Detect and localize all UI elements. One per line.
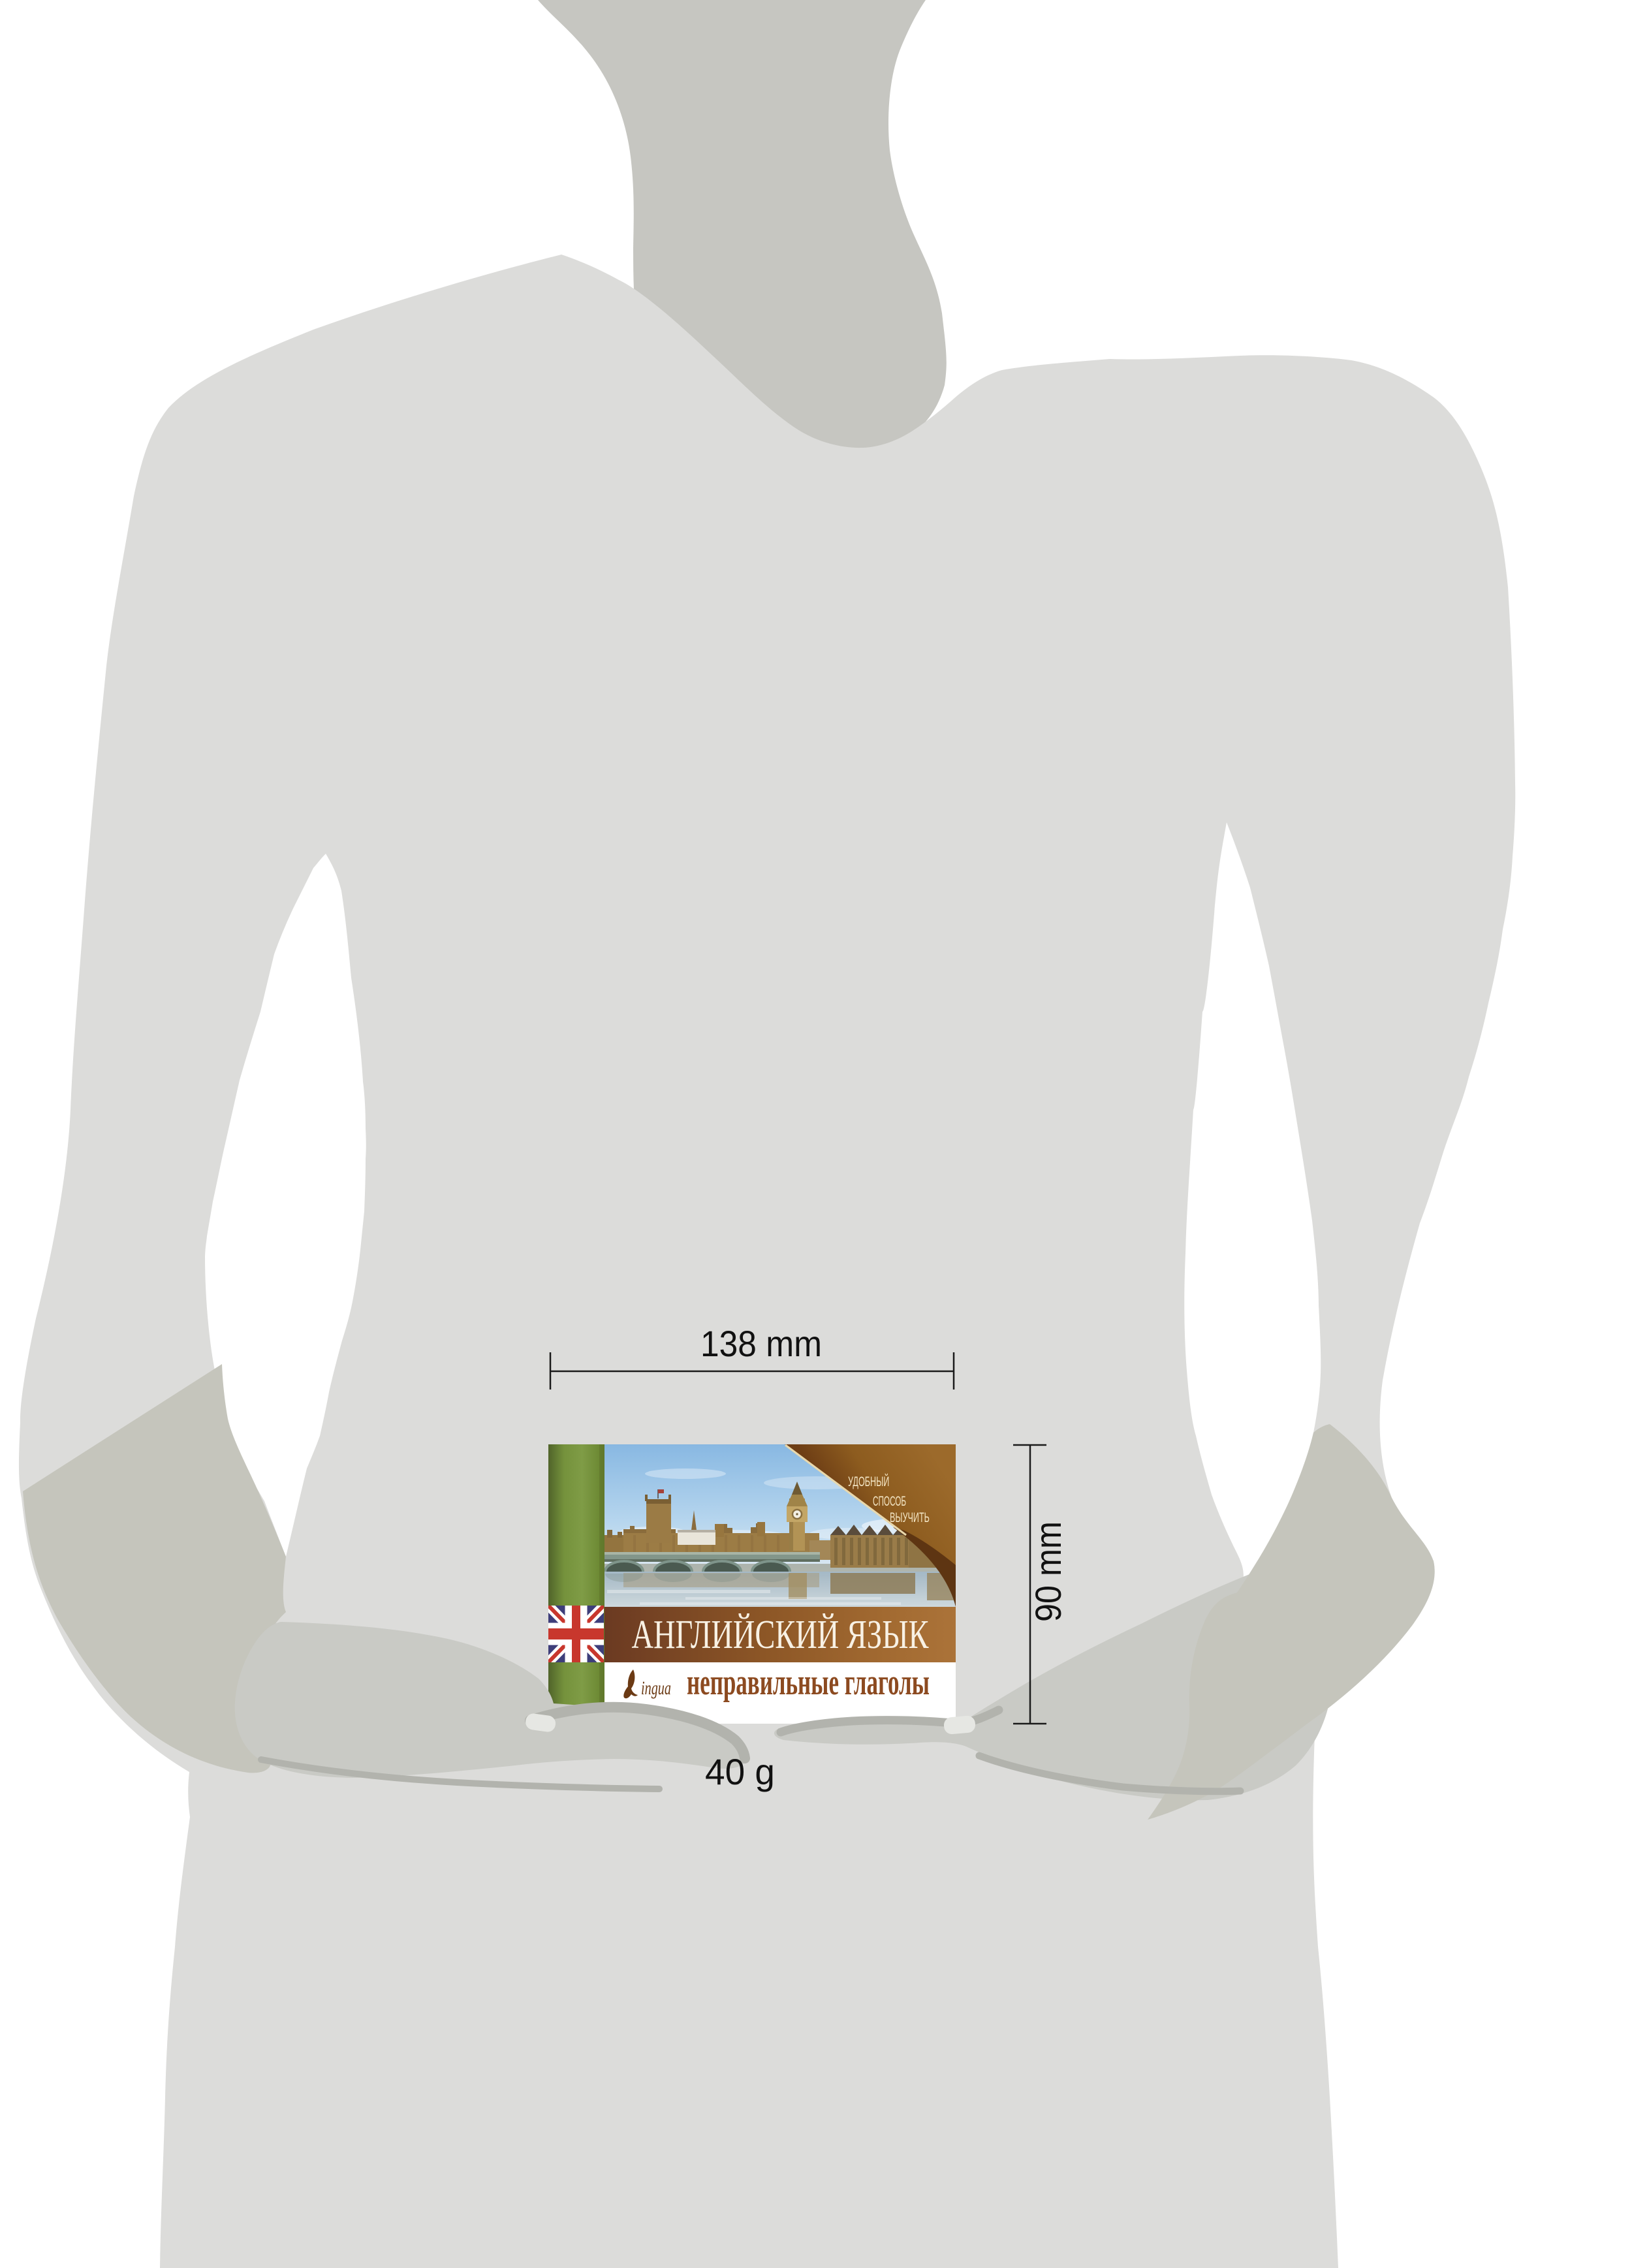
svg-text:СПОСОБ: СПОСОБ <box>873 1493 906 1508</box>
svg-text:40 g: 40 g <box>705 1751 775 1792</box>
svg-text:ВЫУЧИТЬ: ВЫУЧИТЬ <box>890 1510 930 1525</box>
svg-text:УДОБНЫЙ: УДОБНЫЙ <box>848 1474 889 1489</box>
svg-text:неправильные глаголы: неправильные глаголы <box>687 1662 930 1703</box>
svg-text:138 mm: 138 mm <box>700 1323 822 1364</box>
svg-text:90 mm: 90 mm <box>1028 1521 1069 1622</box>
svg-text:АНГЛИЙСКИЙ ЯЗЫК: АНГЛИЙСКИЙ ЯЗЫК <box>632 1613 929 1657</box>
svg-text:ingua: ingua <box>641 1677 671 1699</box>
